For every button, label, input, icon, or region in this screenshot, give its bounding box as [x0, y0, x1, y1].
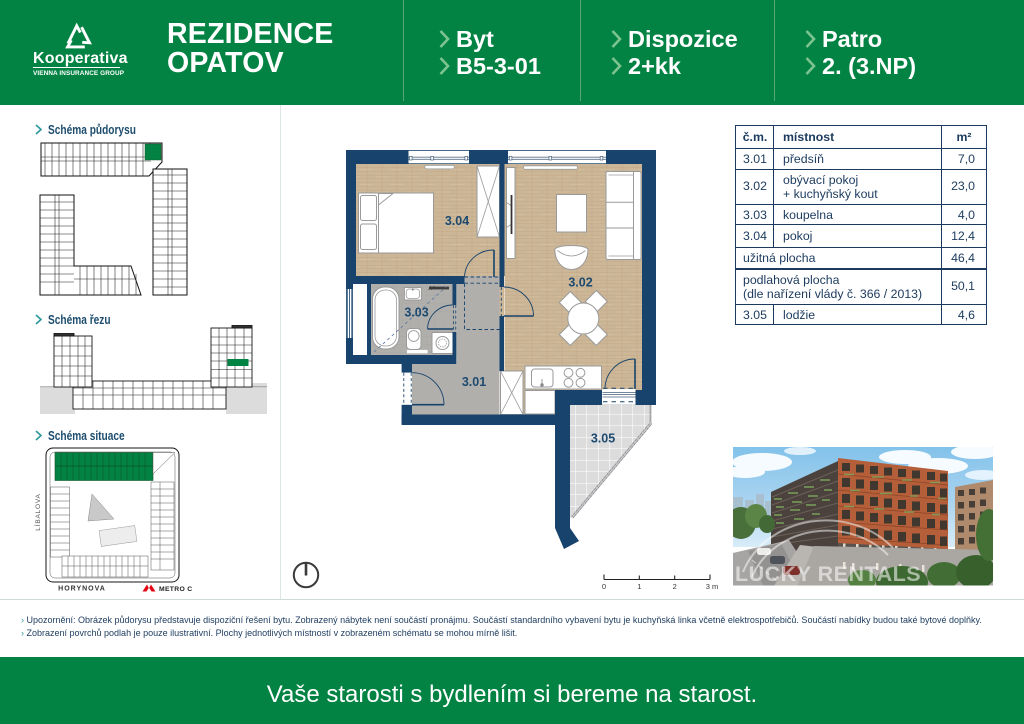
- svg-text:1: 1: [637, 582, 641, 591]
- svg-text:0: 0: [602, 582, 606, 591]
- svg-text:3.03: 3.03: [404, 306, 428, 320]
- svg-text:3.02: 3.02: [568, 276, 592, 290]
- svg-text:3 m: 3 m: [706, 582, 719, 591]
- svg-text:2: 2: [673, 582, 677, 591]
- svg-text:3.04: 3.04: [445, 214, 469, 228]
- svg-text:LUCKY RENTALS: LUCKY RENTALS: [735, 562, 921, 586]
- svg-text:HORYNOVA: HORYNOVA: [58, 586, 106, 593]
- svg-text:3.05: 3.05: [591, 432, 615, 446]
- svg-text:METRO C: METRO C: [159, 586, 192, 593]
- svg-text:LÍBALOVA: LÍBALOVA: [33, 493, 42, 530]
- svg-text:3.01: 3.01: [462, 375, 486, 389]
